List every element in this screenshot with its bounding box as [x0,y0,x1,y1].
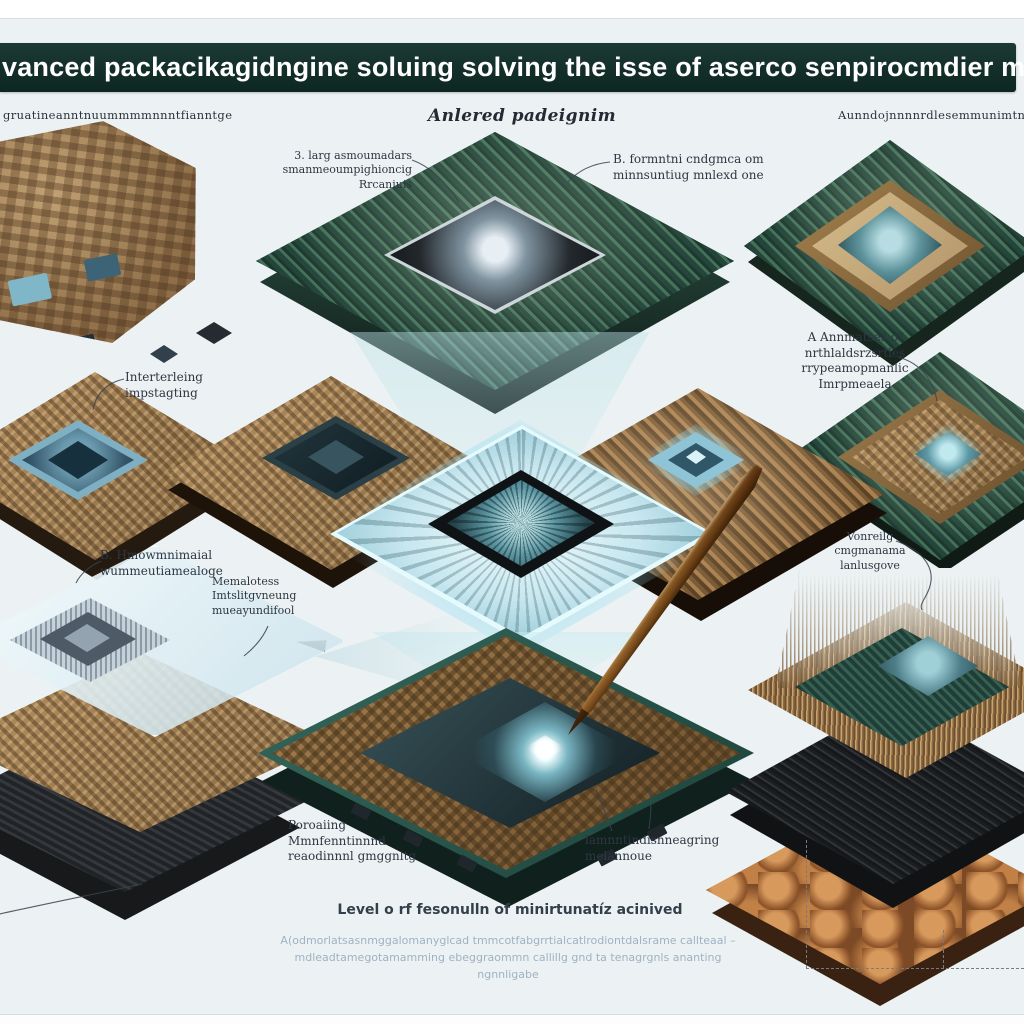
infographic-canvas: vanced packacikagidngine soluing solving… [0,0,1024,1024]
footer-paragraph: A(odmorlatsasnmggalomanyglcad tmmcotfabg… [258,932,758,983]
footer-heading: Level o rf fesonulln of minirtunatíz aci… [250,902,770,918]
top-divider [0,18,1024,19]
callout-interlacing: Interterleing impstagting [125,370,235,401]
callout-top-center-right: B. formntni cndgmca om minnsuntiug mnlex… [613,152,843,183]
callout-bottom-center: lamnntindisnneagring melannoue [585,833,755,864]
column-header-center: Anlered padeignim [428,106,616,126]
dashed-guide-vertical-short [943,930,944,968]
title-banner-text: vanced packacikagidngine soluing solving… [2,52,1024,83]
column-header-left: gruatineanntnuummmmnnntfianntge [3,108,232,122]
title-banner: vanced packacikagidngine soluing solving… [0,43,1016,92]
callout-metal-layer: Memalotess Imtslitgvneung mueayundifool [212,575,322,618]
callout-glass-layer: B. Hmowmnimaial wummeutiamealoge [100,548,230,579]
column-header-right: Aunndojnnnnrdlesemmunimtnnnnnpp [838,108,1024,122]
dashed-guide-horizontal [806,968,1024,969]
callout-top-center-left: 3. larg asmoumadars smanmeoumpighioncig … [272,149,412,192]
pcb-component-icon [84,253,122,282]
callout-right-annotations: A Annmatses of nrthlaldsrzsrtles rrypeam… [790,330,920,392]
bottom-margin [0,1015,1024,1024]
callout-right-lower: Vonreilg cmgmanama lanlusgove [828,530,912,573]
dashed-guide-vertical [806,840,807,968]
pcb-component-icon [8,273,53,307]
callout-bottom-left: Poroaiing Mmnfenntinnnd reaodinnnl gmggn… [288,818,428,865]
